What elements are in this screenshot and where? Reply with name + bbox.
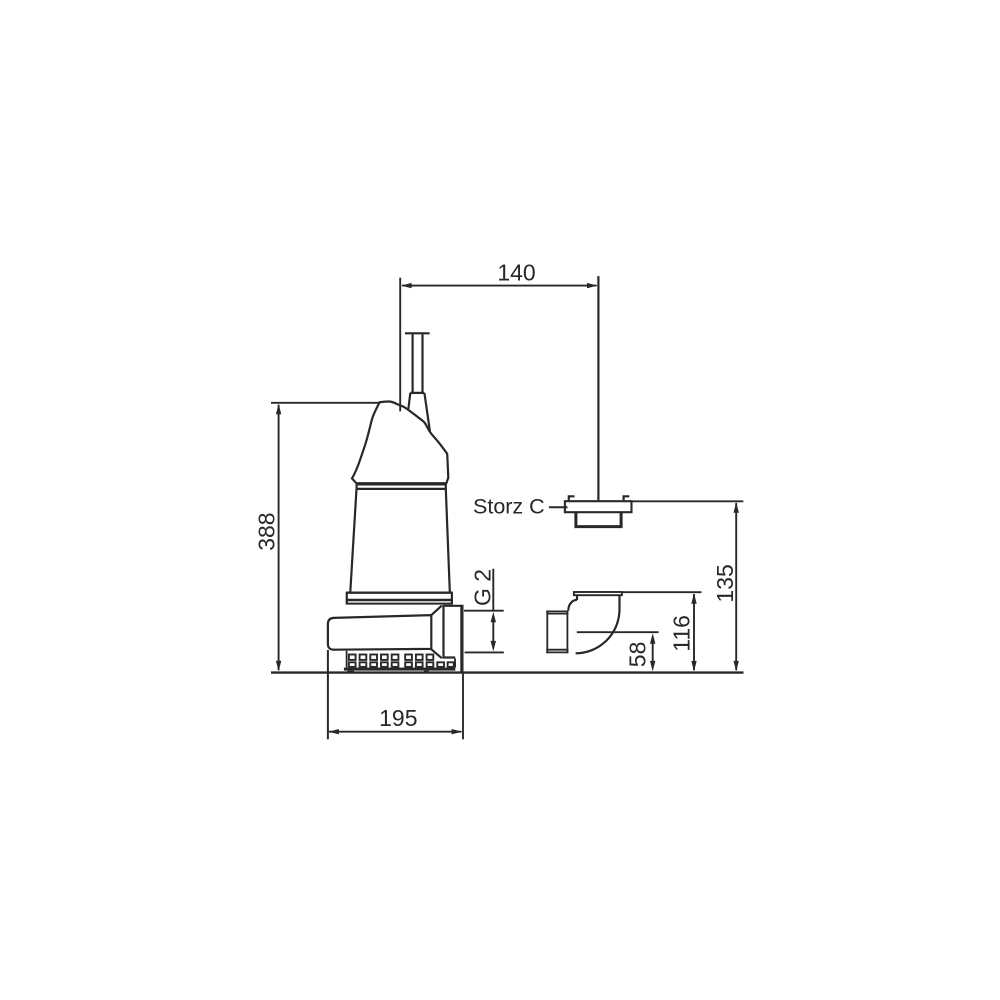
svg-text:58: 58	[624, 642, 650, 668]
svg-text:195: 195	[379, 705, 417, 731]
svg-text:140: 140	[497, 259, 535, 285]
svg-text:116: 116	[669, 615, 695, 652]
svg-text:388: 388	[254, 512, 280, 550]
svg-text:135: 135	[712, 564, 738, 602]
svg-text:G 2: G 2	[470, 569, 496, 606]
svg-text:Storz C: Storz C	[473, 495, 545, 519]
